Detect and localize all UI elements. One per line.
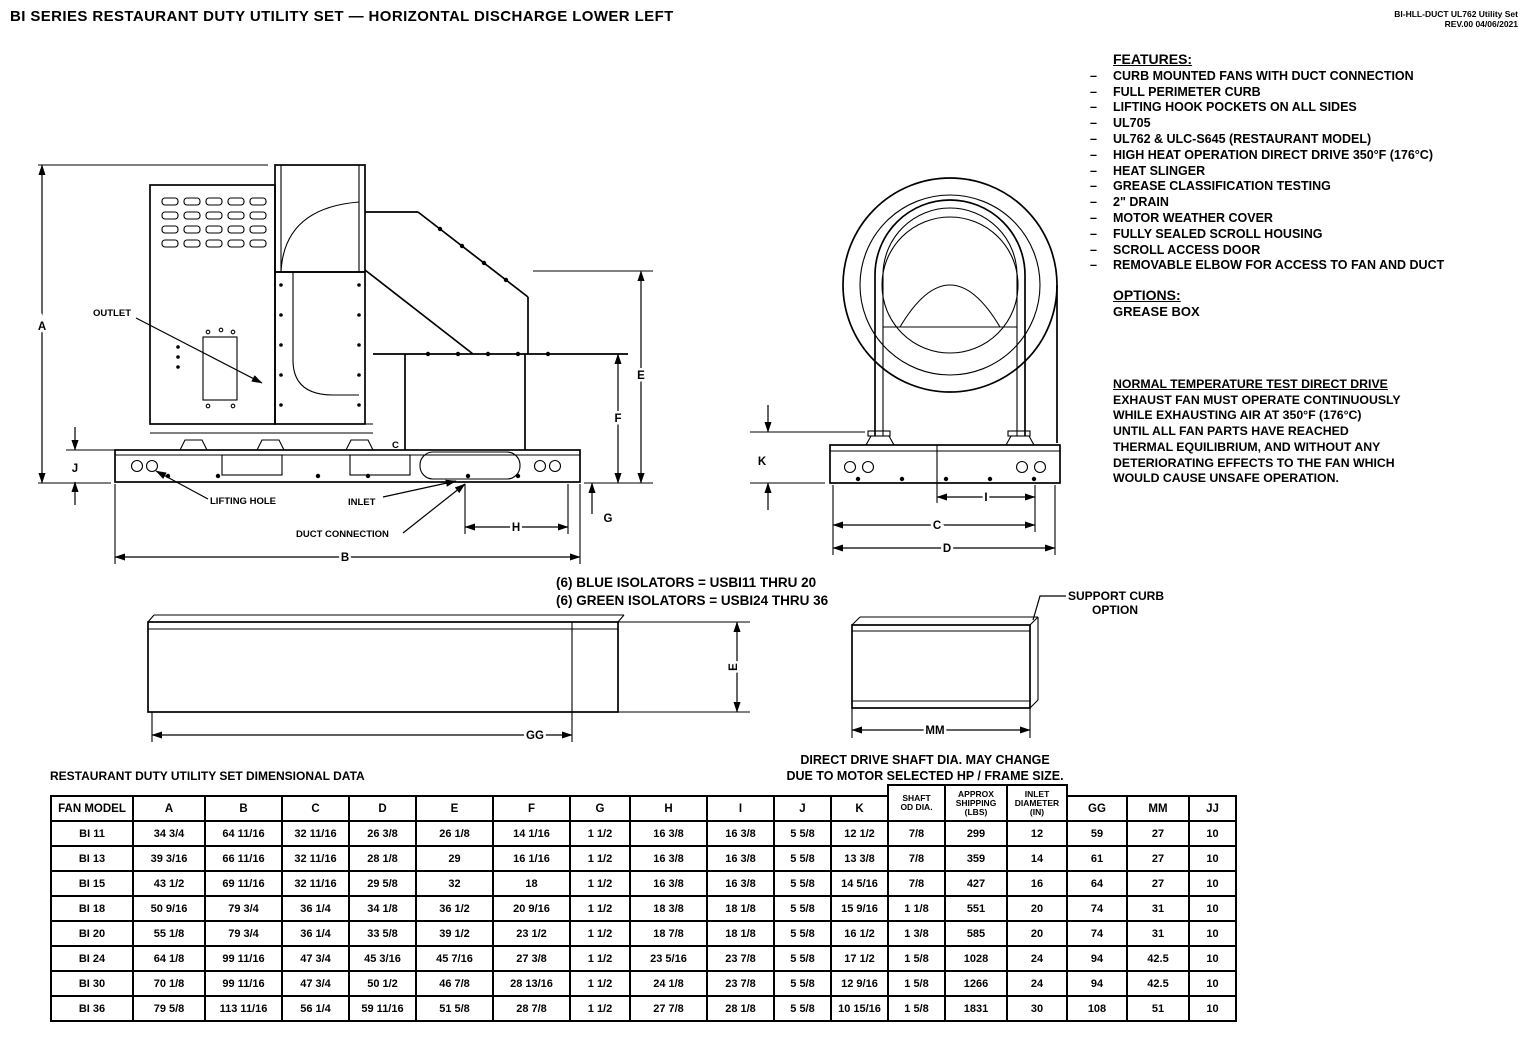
table-cell: 1 1/2 <box>570 896 630 921</box>
table-cell: 13 3/8 <box>831 846 888 871</box>
column-header: F <box>493 796 570 821</box>
table-cell: 1 1/2 <box>570 946 630 971</box>
table-cell: 29 5/8 <box>349 871 416 896</box>
feature-item: –LIFTING HOOK POCKETS ON ALL SIDES <box>1090 100 1522 116</box>
dim-a-label: A <box>38 321 46 333</box>
item-text: 2" DRAIN <box>1113 195 1169 211</box>
item-text: UL762 & ULC-S645 (RESTAURANT MODEL) <box>1113 132 1371 148</box>
table-cell: 10 <box>1189 896 1236 921</box>
table-row: BI 3070 1/899 11/1647 3/450 1/246 7/828 … <box>51 971 1236 996</box>
table-cell: 94 <box>1067 971 1127 996</box>
table-cell: 27 <box>1127 846 1189 871</box>
front-view-drawing: K I C D <box>740 155 1100 575</box>
item-text: FULLY SEALED SCROLL HOUSING <box>1113 227 1323 243</box>
note-line: WOULD CAUSE UNSAFE OPERATION. <box>1113 471 1493 487</box>
table-cell: BI 13 <box>51 846 133 871</box>
table-cell: 15 9/16 <box>831 896 888 921</box>
table-cell: 39 1/2 <box>416 921 493 946</box>
table-row: BI 2464 1/899 11/1647 3/445 3/1645 7/162… <box>51 946 1236 971</box>
table-cell: 5 5/8 <box>774 896 831 921</box>
base-bolt-dots <box>166 474 520 478</box>
table-cell: 29 <box>416 846 493 871</box>
isolator-note-line: (6) BLUE ISOLATORS = USBI11 THRU 20 <box>556 574 828 592</box>
table-cell: 74 <box>1067 896 1127 921</box>
table-row: BI 1339 3/1666 11/1632 11/1628 1/82916 1… <box>51 846 1236 871</box>
feature-item: –GREASE CLASSIFICATION TESTING <box>1090 179 1522 195</box>
table-cell: 39 3/16 <box>133 846 205 871</box>
table-cell: 7/8 <box>888 821 945 846</box>
table-cell: 28 1/8 <box>707 996 774 1021</box>
column-header: J <box>774 796 831 821</box>
table-cell: 45 3/16 <box>349 946 416 971</box>
table-cell: 74 <box>1067 921 1127 946</box>
feature-item: –FULLY SEALED SCROLL HOUSING <box>1090 227 1522 243</box>
table-cell: 5 5/8 <box>774 946 831 971</box>
note-line: THERMAL EQUILIBRIUM, AND WITHOUT ANY <box>1113 440 1493 456</box>
item-text: LIFTING HOOK POCKETS ON ALL SIDES <box>1113 100 1357 116</box>
column-header: APPROXSHIPPING(LBS) <box>945 796 1007 821</box>
options-heading: OPTIONS: <box>1113 287 1200 303</box>
features-section: FEATURES: –CURB MOUNTED FANS WITH DUCT C… <box>1090 52 1522 274</box>
column-header: H <box>630 796 707 821</box>
page-title: BI SERIES RESTAURANT DUTY UTILITY SET — … <box>10 8 674 25</box>
table-cell: 50 9/16 <box>133 896 205 921</box>
table-cell: 79 3/4 <box>205 921 282 946</box>
table-cell: 24 <box>1007 946 1067 971</box>
table-cell: 5 5/8 <box>774 871 831 896</box>
column-header: K <box>831 796 888 821</box>
table-cell: 12 9/16 <box>831 971 888 996</box>
item-text: REMOVABLE ELBOW FOR ACCESS TO FAN AND DU… <box>1113 258 1444 274</box>
shaft-note: DIRECT DRIVE SHAFT DIA. MAY CHANGEDUE TO… <box>752 753 1098 784</box>
table-cell: 17 1/2 <box>831 946 888 971</box>
table-cell: BI 30 <box>51 971 133 996</box>
table-cell: 14 1/16 <box>493 821 570 846</box>
table-cell: 14 <box>1007 846 1067 871</box>
duct-connection-label: DUCT CONNECTION <box>296 529 389 540</box>
dim-mm-label: MM <box>925 725 944 737</box>
table-cell: 7/8 <box>888 871 945 896</box>
table-cell: 1 5/8 <box>888 971 945 996</box>
isolator-notes: (6) BLUE ISOLATORS = USBI11 THRU 20(6) G… <box>556 574 828 610</box>
table-row: BI 2055 1/879 3/436 1/433 5/839 1/223 1/… <box>51 921 1236 946</box>
table-cell: 23 7/8 <box>707 971 774 996</box>
table-cell: 1 1/2 <box>570 821 630 846</box>
dash: – <box>1090 100 1113 116</box>
table-cell: 1 5/8 <box>888 946 945 971</box>
duct-connection-piece <box>420 452 520 479</box>
table-cell: BI 20 <box>51 921 133 946</box>
feature-item: –HIGH HEAT OPERATION DIRECT DRIVE 350°F … <box>1090 148 1522 164</box>
table-body: BI 1134 3/464 11/1632 11/1626 3/826 1/81… <box>51 821 1236 1021</box>
curb-long-box <box>148 622 618 712</box>
outlet-label: OUTLET <box>93 308 131 319</box>
column-header: I <box>707 796 774 821</box>
note-line: UNTIL ALL FAN PARTS HAVE REACHED <box>1113 424 1493 440</box>
table-cell: 79 5/8 <box>133 996 205 1021</box>
table-cell: 26 1/8 <box>416 821 493 846</box>
column-header: D <box>349 796 416 821</box>
isolator-note-line: (6) GREEN ISOLATORS = USBI24 THRU 36 <box>556 592 828 610</box>
support-curb-drawing: SUPPORT CURB OPTION MM <box>830 580 1210 750</box>
normal-temp-body: EXHAUST FAN MUST OPERATE CONTINUOUSLYWHI… <box>1113 393 1493 487</box>
dash: – <box>1090 132 1113 148</box>
table-cell: 16 3/8 <box>630 821 707 846</box>
table-cell: 108 <box>1067 996 1127 1021</box>
table-cell: 94 <box>1067 946 1127 971</box>
feature-item: –MOTOR WEATHER COVER <box>1090 211 1522 227</box>
frame-bolt-dots <box>279 283 361 407</box>
feature-item: –2" DRAIN <box>1090 195 1522 211</box>
table-cell: 18 7/8 <box>630 921 707 946</box>
table-cell: 24 1/8 <box>630 971 707 996</box>
table-cell: 5 5/8 <box>774 921 831 946</box>
item-text: CURB MOUNTED FANS WITH DUCT CONNECTION <box>1113 69 1414 85</box>
feature-item: –UL705 <box>1090 116 1522 132</box>
foot <box>866 436 894 445</box>
table-cell: 27 3/8 <box>493 946 570 971</box>
table-cell: 5 5/8 <box>774 996 831 1021</box>
table-title: RESTAURANT DUTY UTILITY SET DIMENSIONAL … <box>50 769 365 783</box>
table-cell: 427 <box>945 871 1007 896</box>
table-cell: 99 11/16 <box>205 946 282 971</box>
table-cell: 16 <box>1007 871 1067 896</box>
table-cell: 56 1/4 <box>282 996 349 1021</box>
table-cell: 585 <box>945 921 1007 946</box>
table-cell: 1 5/8 <box>888 996 945 1021</box>
foot <box>1006 436 1034 445</box>
table-cell: 51 <box>1127 996 1189 1021</box>
table-cell: 70 1/8 <box>133 971 205 996</box>
foot <box>180 440 207 450</box>
item-text: GREASE CLASSIFICATION TESTING <box>1113 179 1331 195</box>
dim-i-label: I <box>984 492 987 504</box>
motor-housing <box>150 185 275 424</box>
feature-item: –FULL PERIMETER CURB <box>1090 85 1522 101</box>
table-cell: 47 3/4 <box>282 946 349 971</box>
column-header: E <box>416 796 493 821</box>
table-cell: 20 <box>1007 896 1067 921</box>
column-header: SHAFTOD DIA. <box>888 796 945 821</box>
dim-k-label: K <box>758 456 767 468</box>
table-cell: 16 3/8 <box>707 846 774 871</box>
feature-item: –SCROLL ACCESS DOOR <box>1090 243 1522 259</box>
table-cell: 16 3/8 <box>707 871 774 896</box>
table-cell: 24 <box>1007 971 1067 996</box>
support-curb-label-line1: SUPPORT CURB <box>1068 589 1164 603</box>
table-cell: 23 7/8 <box>707 946 774 971</box>
table-cell: 20 9/16 <box>493 896 570 921</box>
table-cell: 23 5/16 <box>630 946 707 971</box>
table-cell: 28 1/8 <box>349 846 416 871</box>
item-text: UL705 <box>1113 116 1151 132</box>
note-line: DETERIORATING EFFECTS TO THE FAN WHICH <box>1113 456 1493 472</box>
table-cell: BI 15 <box>51 871 133 896</box>
table-cell: 69 11/16 <box>205 871 282 896</box>
feature-item: –CURB MOUNTED FANS WITH DUCT CONNECTION <box>1090 69 1522 85</box>
dim-gg-label: GG <box>526 730 544 742</box>
note-line: EXHAUST FAN MUST OPERATE CONTINUOUSLY <box>1113 393 1493 409</box>
table-cell: 23 1/2 <box>493 921 570 946</box>
table-cell: 32 11/16 <box>282 871 349 896</box>
normal-temp-heading: NORMAL TEMPERATURE TEST DIRECT DRIVE <box>1113 377 1493 393</box>
column-header: G <box>570 796 630 821</box>
dash: – <box>1090 69 1113 85</box>
table-cell: 10 <box>1189 846 1236 871</box>
options-list: GREASE BOX <box>1113 304 1200 320</box>
table-cell: 61 <box>1067 846 1127 871</box>
column-header: A <box>133 796 205 821</box>
table-cell: 359 <box>945 846 1007 871</box>
table-cell: 1266 <box>945 971 1007 996</box>
table-cell: 10 <box>1189 871 1236 896</box>
table-cell: 46 7/8 <box>416 971 493 996</box>
dim-e-label: E <box>637 370 645 382</box>
features-list: –CURB MOUNTED FANS WITH DUCT CONNECTION–… <box>1090 69 1522 274</box>
table-cell: 16 1/16 <box>493 846 570 871</box>
item-text: FULL PERIMETER CURB <box>1113 85 1261 101</box>
table-row: BI 1134 3/464 11/1632 11/1626 3/826 1/81… <box>51 821 1236 846</box>
normal-temp-note: NORMAL TEMPERATURE TEST DIRECT DRIVE EXH… <box>1113 377 1493 487</box>
table-cell: 34 1/8 <box>349 896 416 921</box>
table-cell: 1 1/2 <box>570 996 630 1021</box>
dim-f-label: F <box>614 413 621 425</box>
table-cell: 26 3/8 <box>349 821 416 846</box>
table-cell: 36 1/2 <box>416 896 493 921</box>
dim-g-label: G <box>604 513 613 525</box>
note-line: WHILE EXHAUSTING AIR AT 350°F (176°C) <box>1113 408 1493 424</box>
inlet-bell <box>900 285 1000 327</box>
table-cell: 32 11/16 <box>282 846 349 871</box>
item-text: SCROLL ACCESS DOOR <box>1113 243 1260 259</box>
curb-long-drawing: GG E <box>120 610 780 750</box>
table-cell: 59 <box>1067 821 1127 846</box>
feature-item: –REMOVABLE ELBOW FOR ACCESS TO FAN AND D… <box>1090 258 1522 274</box>
table-cell: 16 3/8 <box>707 821 774 846</box>
lifting-hole-label: LIFTING HOLE <box>210 496 276 507</box>
table-cell: 43 1/2 <box>133 871 205 896</box>
table-cell: 33 5/8 <box>349 921 416 946</box>
table-cell: 16 1/2 <box>831 921 888 946</box>
dim-d-label: D <box>943 543 951 555</box>
column-header: B <box>205 796 282 821</box>
dimensional-data-table: FAN MODELABCDEFGHIJKSHAFTOD DIA.APPROXSH… <box>50 795 1237 1022</box>
table-cell: 1 1/2 <box>570 846 630 871</box>
table-cell: 50 1/2 <box>349 971 416 996</box>
table-cell: 42.5 <box>1127 946 1189 971</box>
table-cell: 31 <box>1127 921 1189 946</box>
table-cell: 10 <box>1189 971 1236 996</box>
elbow-housing <box>275 165 365 272</box>
dim-c-side-label: C <box>392 440 399 451</box>
table-cell: 34 3/4 <box>133 821 205 846</box>
inlet-label: INLET <box>348 497 376 508</box>
table-cell: 32 <box>416 871 493 896</box>
table-cell: 64 1/8 <box>133 946 205 971</box>
table-cell: BI 24 <box>51 946 133 971</box>
column-header: C <box>282 796 349 821</box>
table-cell: 1 1/2 <box>570 921 630 946</box>
table-cell: 59 11/16 <box>349 996 416 1021</box>
side-view-drawing: OUTLET LIFTING HOLE INLET DUCT CONNECTIO… <box>28 150 708 570</box>
table-cell: 55 1/8 <box>133 921 205 946</box>
access-door <box>203 337 237 400</box>
doc-reference-line1: BI-HLL-DUCT UL762 Utility Set <box>1394 9 1518 19</box>
table-cell: 5 5/8 <box>774 821 831 846</box>
table-cell: 28 7/8 <box>493 996 570 1021</box>
table-cell: 1 1/2 <box>570 871 630 896</box>
table-cell: 5 5/8 <box>774 846 831 871</box>
options-section: OPTIONS: GREASE BOX <box>1090 287 1200 320</box>
table-cell: 45 7/16 <box>416 946 493 971</box>
table-cell: 1 1/8 <box>888 896 945 921</box>
table-cell: 27 <box>1127 871 1189 896</box>
table-cell: 551 <box>945 896 1007 921</box>
doc-reference: BI-HLL-DUCT UL762 Utility Set REV.00 04/… <box>1394 9 1518 29</box>
table-cell: 32 11/16 <box>282 821 349 846</box>
foot <box>346 440 373 450</box>
table-cell: 27 <box>1127 821 1189 846</box>
table-cell: 42.5 <box>1127 971 1189 996</box>
table-cell: 28 13/16 <box>493 971 570 996</box>
table-cell: 36 1/4 <box>282 921 349 946</box>
table-cell: 20 <box>1007 921 1067 946</box>
table-cell: 12 <box>1007 821 1067 846</box>
table-cell: 64 <box>1067 871 1127 896</box>
table-cell: 5 5/8 <box>774 971 831 996</box>
lifting-hole-left-2 <box>147 461 158 472</box>
table-cell: BI 18 <box>51 896 133 921</box>
table-cell: 1 3/8 <box>888 921 945 946</box>
louver-vents <box>162 198 266 247</box>
table-cell: 299 <box>945 821 1007 846</box>
dim-e-curb-label: E <box>728 663 740 671</box>
table-cell: 16 3/8 <box>630 871 707 896</box>
table-cell: 18 3/8 <box>630 896 707 921</box>
lifting-hole-right-2 <box>550 461 561 472</box>
lifting-hole-left-1 <box>132 461 143 472</box>
table-cell: 7/8 <box>888 846 945 871</box>
table-cell: BI 11 <box>51 821 133 846</box>
dim-h-label: H <box>512 522 520 534</box>
table-cell: 31 <box>1127 896 1189 921</box>
table-cell: 66 11/16 <box>205 846 282 871</box>
table-cell: 1 1/2 <box>570 971 630 996</box>
dash: – <box>1090 85 1113 101</box>
table-cell: 14 5/16 <box>831 871 888 896</box>
features-heading: FEATURES: <box>1113 52 1522 68</box>
table-cell: 10 <box>1189 921 1236 946</box>
table-cell: 10 <box>1189 996 1236 1021</box>
column-header: INLETDIAMETER(IN) <box>1007 796 1067 821</box>
table-cell: 27 7/8 <box>630 996 707 1021</box>
support-curb-box <box>852 625 1030 708</box>
option-item: GREASE BOX <box>1113 304 1200 320</box>
scroll-housing-side <box>275 272 365 424</box>
duct-bolt-dots <box>426 227 550 356</box>
feature-item: –HEAT SLINGER <box>1090 164 1522 180</box>
foot <box>257 440 284 450</box>
dim-c-label: C <box>933 520 941 532</box>
table-cell: 51 5/8 <box>416 996 493 1021</box>
column-header: MM <box>1127 796 1189 821</box>
item-text: HEAT SLINGER <box>1113 164 1205 180</box>
table-cell: 10 15/16 <box>831 996 888 1021</box>
table-cell: 99 11/16 <box>205 971 282 996</box>
dash: – <box>1090 116 1113 132</box>
item-text: MOTOR WEATHER COVER <box>1113 211 1273 227</box>
table-cell: 18 1/8 <box>707 921 774 946</box>
feature-item: –UL762 & ULC-S645 (RESTAURANT MODEL) <box>1090 132 1522 148</box>
dim-j-label: J <box>72 463 78 475</box>
table-row: BI 1850 9/1679 3/436 1/434 1/836 1/220 9… <box>51 896 1236 921</box>
table-cell: 47 3/4 <box>282 971 349 996</box>
shaft-note-line: DIRECT DRIVE SHAFT DIA. MAY CHANGE <box>752 753 1098 769</box>
column-header: JJ <box>1189 796 1236 821</box>
support-curb-label-line2: OPTION <box>1092 603 1138 617</box>
lifting-hole-right-1 <box>535 461 546 472</box>
table-cell: 18 <box>493 871 570 896</box>
table-cell: 12 1/2 <box>831 821 888 846</box>
doc-reference-line2: REV.00 04/06/2021 <box>1394 19 1518 29</box>
table-cell: 10 <box>1189 821 1236 846</box>
table-cell: 64 11/16 <box>205 821 282 846</box>
table-cell: 1028 <box>945 946 1007 971</box>
table-cell: 113 11/16 <box>205 996 282 1021</box>
item-text: HIGH HEAT OPERATION DIRECT DRIVE 350°F (… <box>1113 148 1433 164</box>
table-cell: 79 3/4 <box>205 896 282 921</box>
dim-b-label: B <box>341 552 349 564</box>
table-header-row: FAN MODELABCDEFGHIJKSHAFTOD DIA.APPROXSH… <box>51 796 1236 821</box>
column-header: GG <box>1067 796 1127 821</box>
table-cell: 10 <box>1189 946 1236 971</box>
shaft-note-line: DUE TO MOTOR SELECTED HP / FRAME SIZE. <box>752 769 1098 785</box>
table-cell: 36 1/4 <box>282 896 349 921</box>
table-cell: 1831 <box>945 996 1007 1021</box>
table-cell: BI 36 <box>51 996 133 1021</box>
table-row: BI 3679 5/8113 11/1656 1/459 11/1651 5/8… <box>51 996 1236 1021</box>
table-cell: 30 <box>1007 996 1067 1021</box>
column-header: FAN MODEL <box>51 796 133 821</box>
table-cell: 18 1/8 <box>707 896 774 921</box>
table-cell: 16 3/8 <box>630 846 707 871</box>
table-row: BI 1543 1/269 11/1632 11/1629 5/832181 1… <box>51 871 1236 896</box>
